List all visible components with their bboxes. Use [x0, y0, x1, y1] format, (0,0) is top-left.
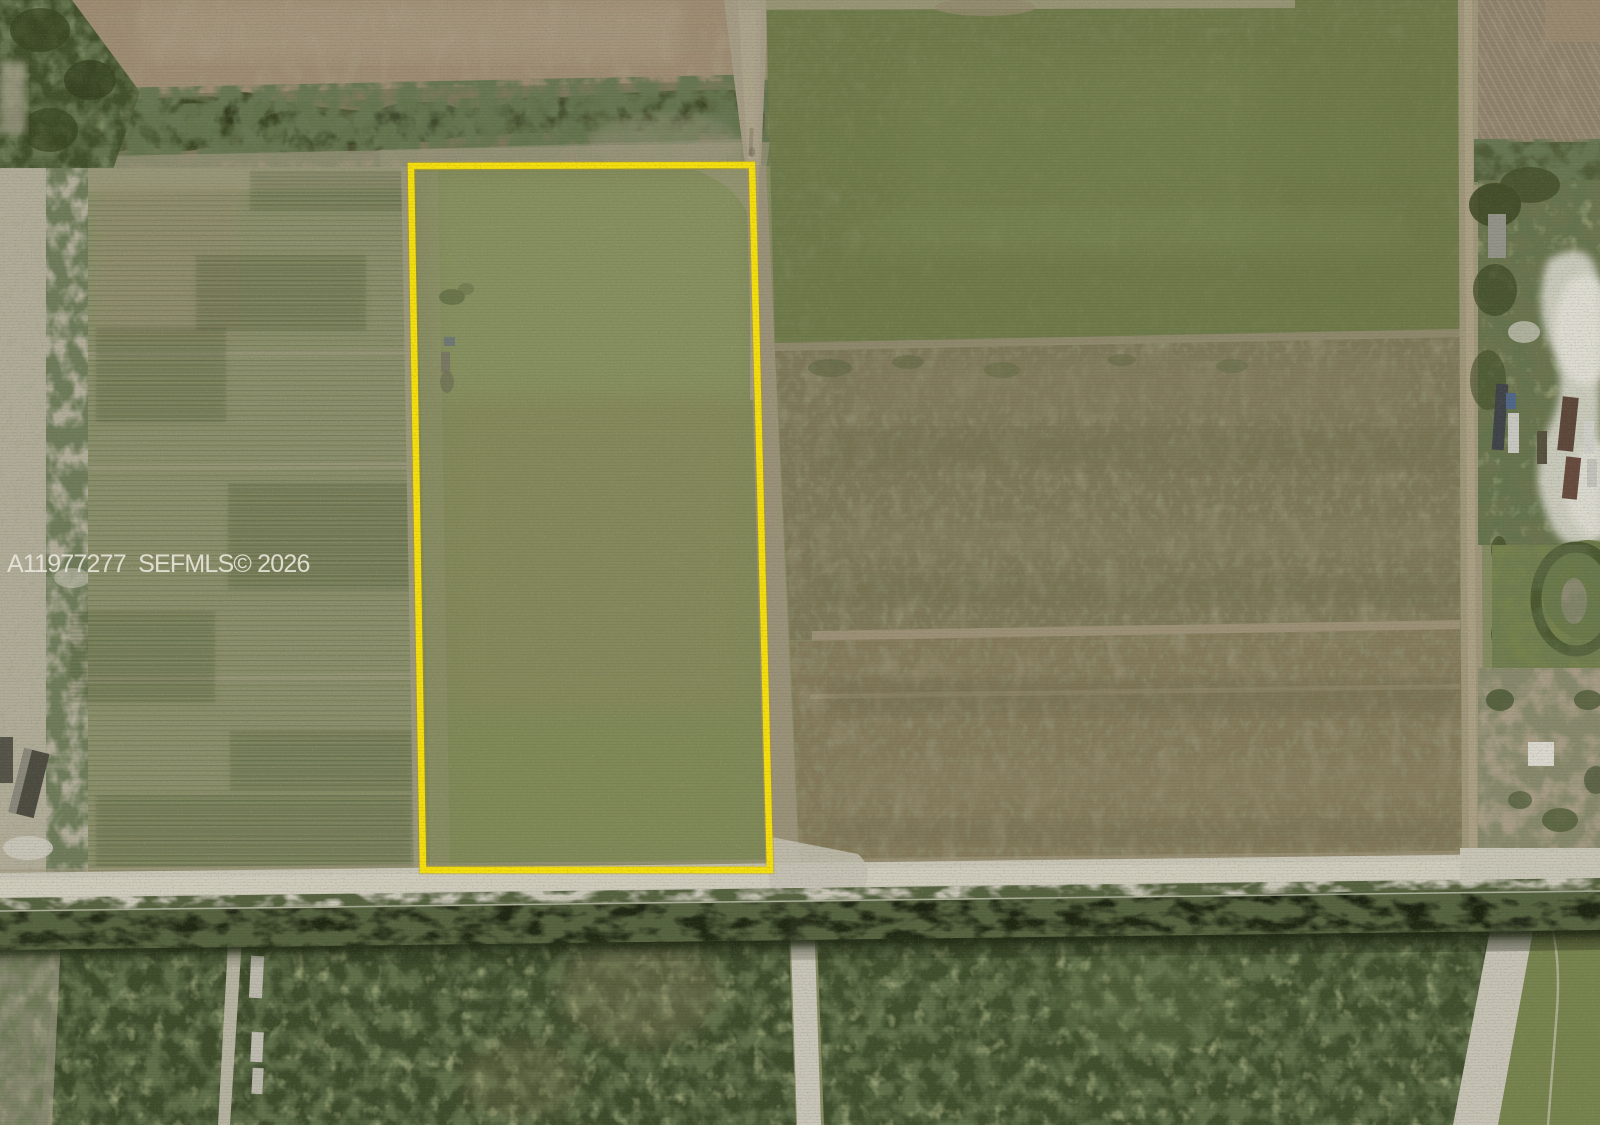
svg-text:A11977277 SEFMLS© 2026: A11977277 SEFMLS© 2026	[7, 550, 310, 578]
